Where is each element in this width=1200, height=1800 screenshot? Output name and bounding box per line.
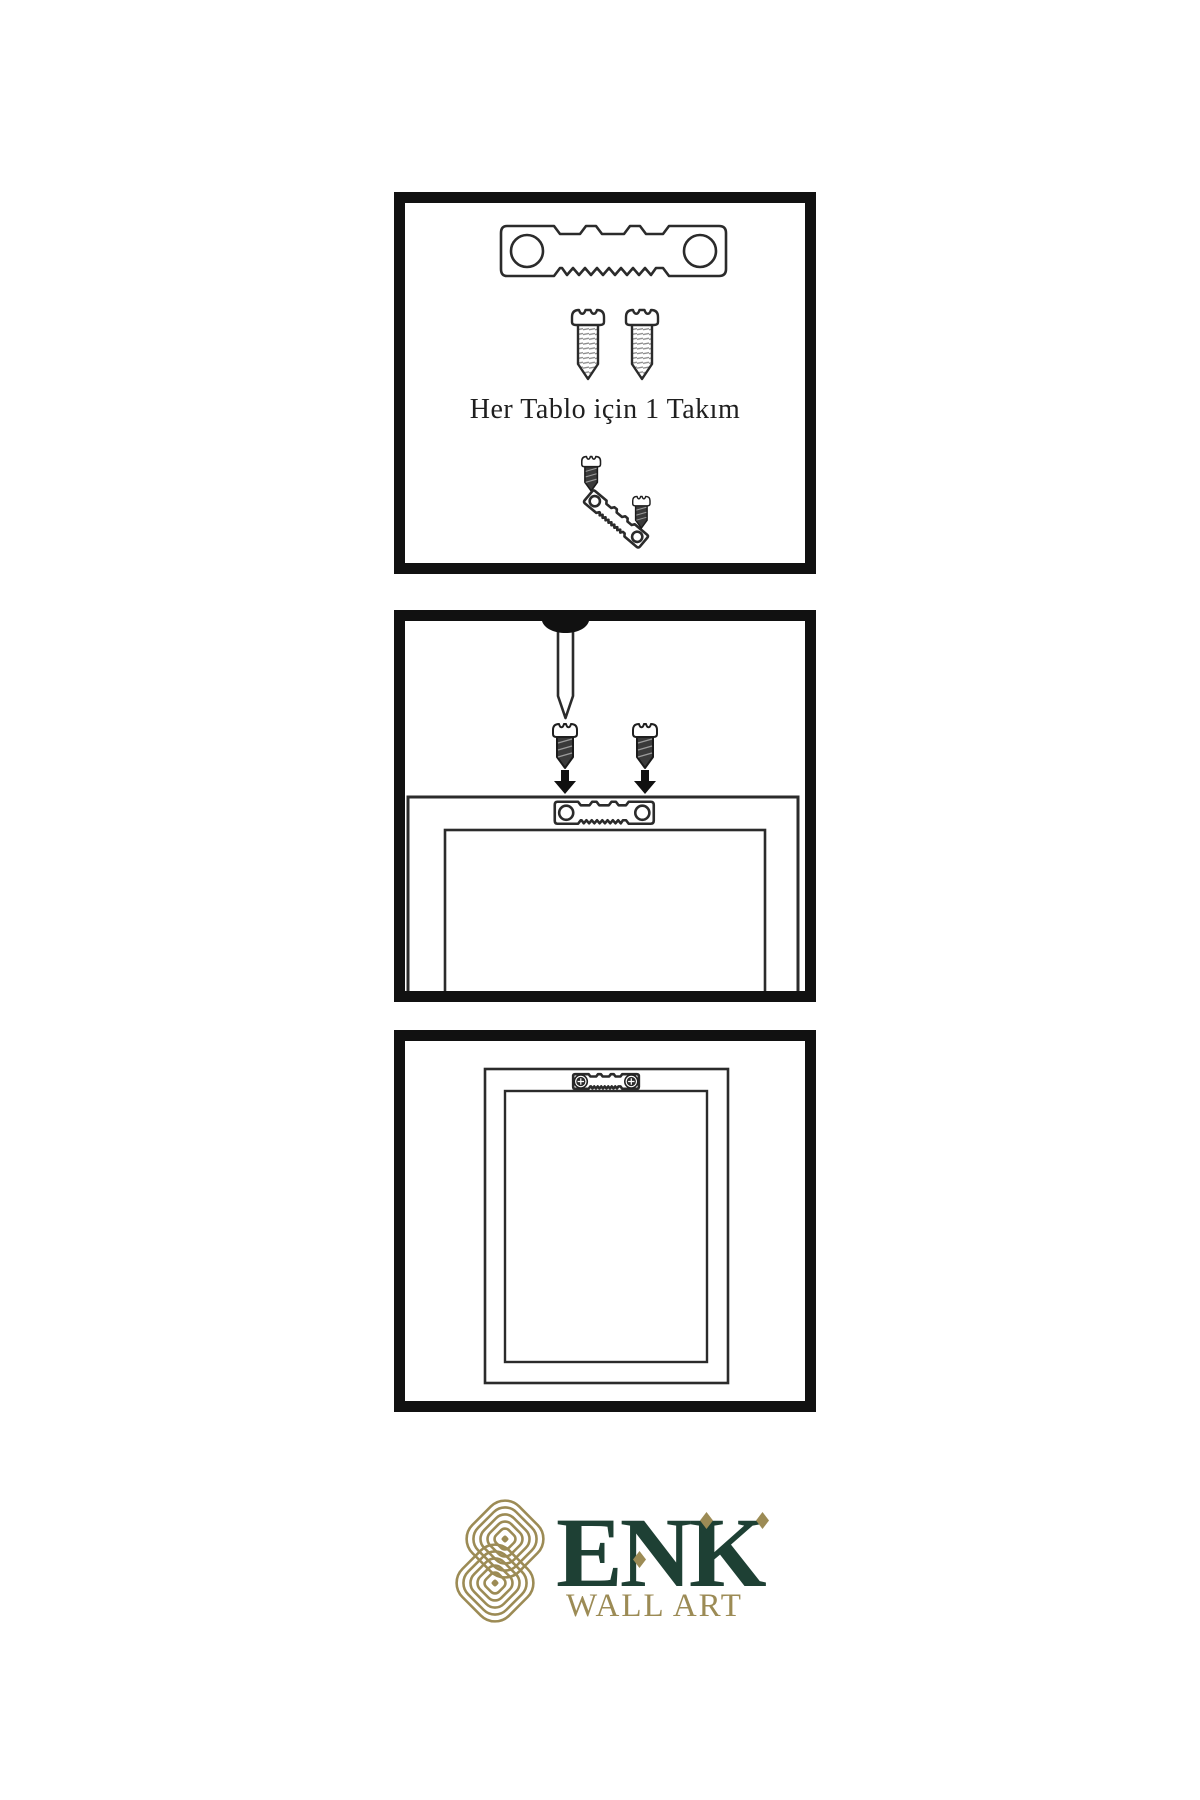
dark-screw-icon — [553, 724, 577, 768]
down-arrow-icon — [554, 770, 576, 794]
step-2-panel — [394, 610, 816, 1002]
nail-icon — [542, 621, 589, 718]
down-arrow-icon — [634, 770, 656, 794]
small-screw-icon — [582, 457, 601, 491]
interlaced-knot-icon — [437, 1492, 563, 1630]
step-2-illustration — [405, 621, 805, 991]
step-3-panel — [394, 1030, 816, 1412]
brand-tagline: WALL ART — [566, 1590, 806, 1623]
frame-back-icon — [408, 797, 798, 991]
screw-icon — [626, 310, 658, 379]
sawtooth-hanger-icon — [501, 226, 726, 276]
step-1-caption: Her Tablo için 1 Takım — [405, 395, 805, 426]
step-1-panel: Her Tablo için 1 Takım — [394, 192, 816, 574]
frame-back-icon — [485, 1069, 728, 1383]
screw-head-icon — [625, 1075, 638, 1088]
dark-screw-icon — [633, 724, 657, 768]
screw-icon — [572, 310, 604, 379]
step-3-illustration — [405, 1041, 805, 1401]
screw-head-icon — [574, 1075, 587, 1088]
step-1-illustration — [405, 203, 805, 563]
sawtooth-hanger-icon — [555, 802, 654, 824]
